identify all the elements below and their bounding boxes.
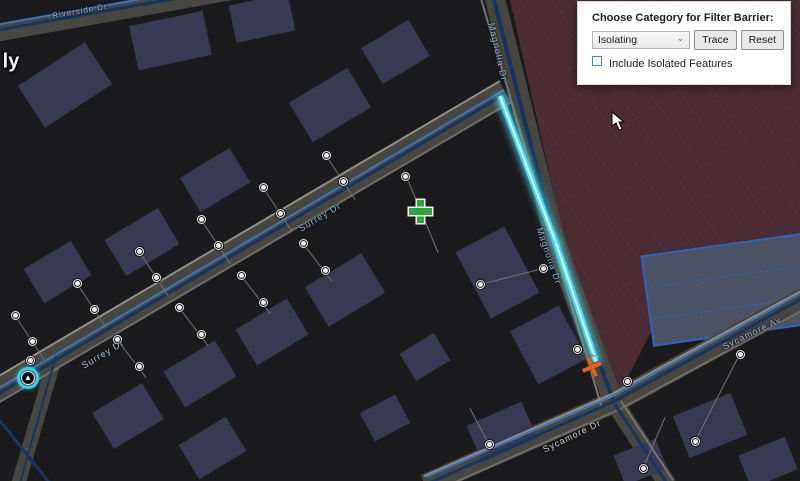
water-device-icon[interactable] [275, 208, 286, 219]
building-footprint [180, 148, 250, 212]
water-device-icon[interactable] [475, 279, 486, 290]
building-footprint [129, 10, 212, 70]
water-device-icon[interactable] [400, 171, 411, 182]
building-footprint [178, 417, 246, 480]
water-device-icon[interactable] [484, 439, 495, 450]
building-footprint [23, 241, 91, 304]
include-isolated-label: Include Isolated Features [609, 58, 733, 70]
water-device-icon[interactable] [258, 182, 269, 193]
panel-title: Choose Category for Filter Barrier: [592, 12, 776, 24]
water-device-icon[interactable] [321, 150, 332, 161]
water-device-icon[interactable] [298, 238, 309, 249]
building-footprint [235, 299, 308, 366]
water-device-icon[interactable] [690, 436, 701, 447]
category-dropdown[interactable]: Isolating ⌄ [592, 31, 690, 49]
category-dropdown-value: Isolating [598, 34, 637, 46]
filter-barrier-panel: Choose Category for Filter Barrier: Isol… [577, 1, 791, 85]
building-footprint [289, 68, 371, 142]
building-footprint [229, 0, 296, 43]
water-device-icon[interactable] [338, 176, 349, 187]
building-footprint [92, 383, 163, 449]
building-footprint [738, 436, 797, 481]
water-device-icon[interactable] [638, 463, 649, 474]
reset-button[interactable]: Reset [741, 30, 784, 50]
chevron-down-icon: ⌄ [677, 33, 685, 44]
building-footprint [163, 341, 236, 408]
building-footprint [400, 333, 451, 381]
include-isolated-checkbox[interactable] [592, 56, 602, 66]
water-device-icon[interactable] [196, 214, 207, 225]
water-device-icon[interactable] [236, 270, 247, 281]
water-device-icon[interactable] [134, 246, 145, 257]
trace-button[interactable]: Trace [694, 30, 736, 50]
app-window: Magnolia DrMagnolia DrSurrey DrSurrey Dr… [0, 0, 800, 481]
water-device-icon[interactable] [27, 336, 38, 347]
water-device-icon[interactable] [174, 302, 185, 313]
water-device-icon[interactable] [10, 310, 21, 321]
water-device-icon[interactable] [25, 355, 36, 366]
water-device-icon[interactable] [151, 272, 162, 283]
start-marker-shape [409, 208, 432, 215]
valve-icon: ▲ [21, 371, 35, 385]
water-device-icon[interactable] [258, 297, 269, 308]
water-device-icon[interactable] [320, 265, 331, 276]
highlighted-valve-device[interactable]: ▲ [17, 367, 39, 389]
service-line [303, 243, 333, 282]
street-label: ly [3, 51, 20, 74]
water-device-icon[interactable] [213, 240, 224, 251]
water-device-icon[interactable] [622, 376, 633, 387]
building-footprint [360, 394, 410, 441]
service-line [241, 275, 271, 314]
building-footprint [305, 253, 385, 326]
water-device-icon[interactable] [134, 361, 145, 372]
trace-start-point-marker[interactable] [409, 200, 432, 223]
water-device-icon[interactable] [572, 344, 583, 355]
water-device-icon[interactable] [735, 349, 746, 360]
building-footprint [673, 393, 747, 458]
building-footprint [105, 208, 180, 276]
building-footprint [361, 20, 430, 84]
water-device-icon[interactable] [196, 329, 207, 340]
mouse-cursor-icon [611, 111, 631, 131]
lot-dashed-line [650, 264, 800, 288]
water-device-icon[interactable] [72, 278, 83, 289]
water-device-icon[interactable] [89, 304, 100, 315]
building-footprint [18, 42, 112, 128]
service-line [179, 307, 209, 346]
